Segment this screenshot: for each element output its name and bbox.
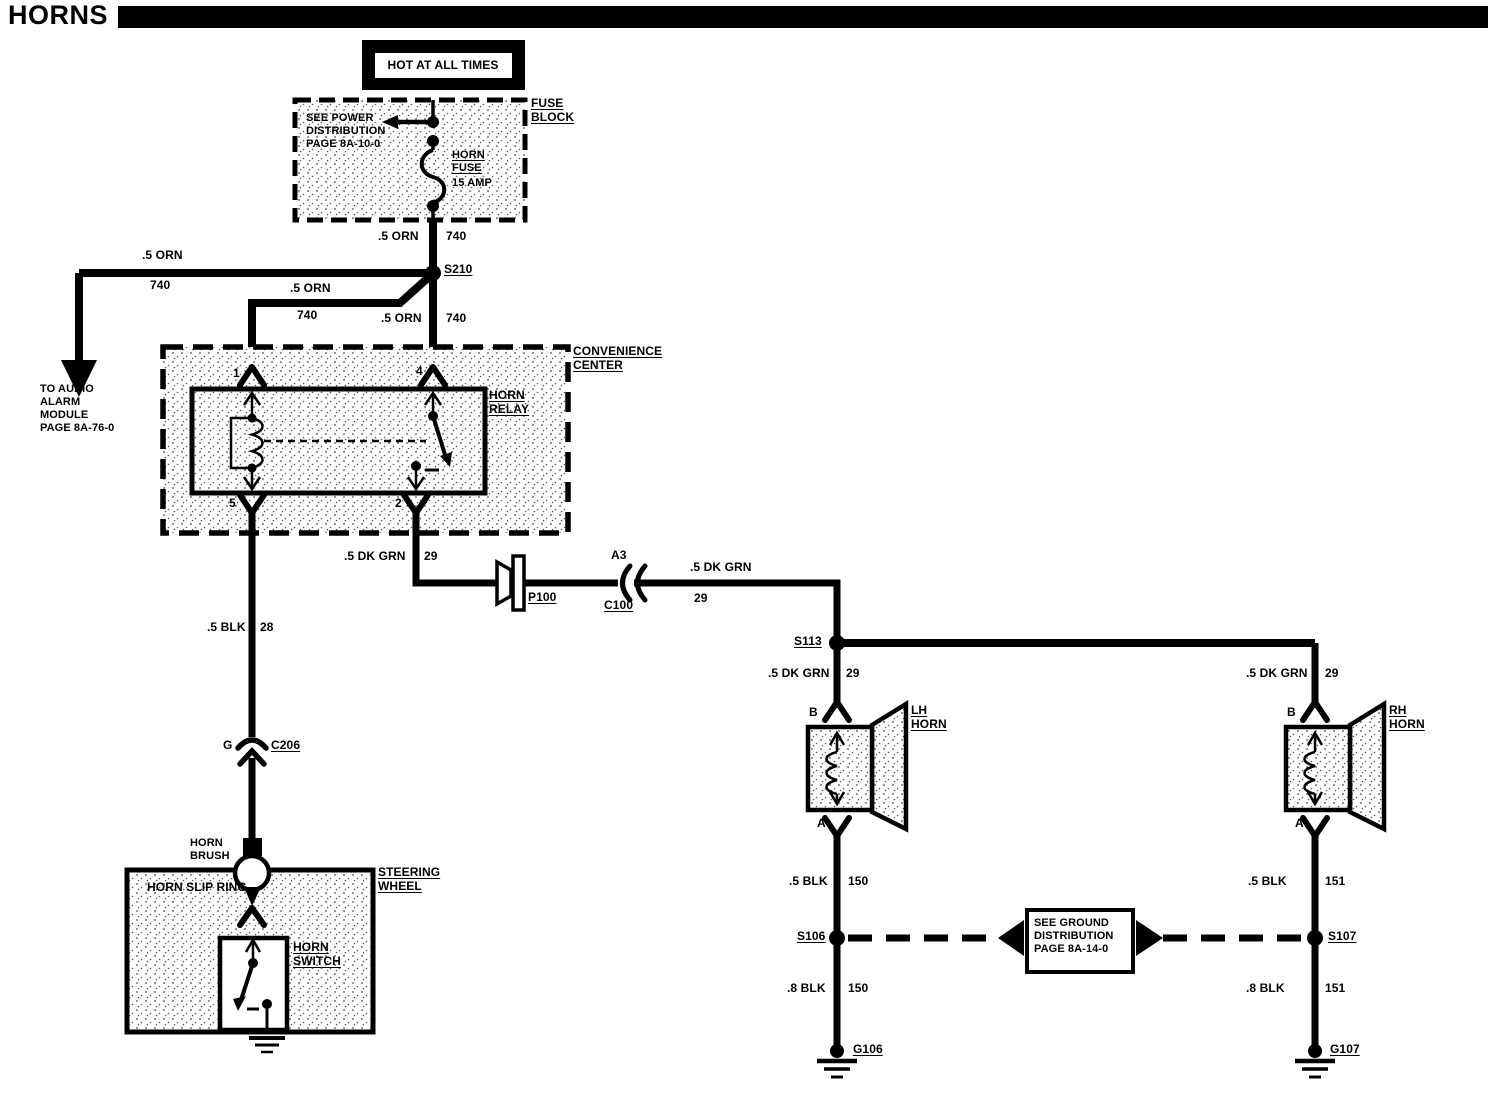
power-distribution-note: SEE POWER DISTRIBUTION PAGE 8A-10-0 [306, 112, 385, 151]
diagram-artwork [0, 0, 1488, 1104]
connector-p100 [497, 556, 524, 610]
lh-horn-label: LH HORN [911, 703, 947, 731]
rh-horn-terminal-b: B [1287, 705, 1296, 719]
audio-alarm-note: TO AUDIO ALARM MODULE PAGE 8A-76-0 [40, 383, 114, 435]
ground-g107-label: G107 [1330, 1042, 1360, 1056]
lh-horn-terminal-b: B [809, 705, 818, 719]
wire-color-relay4-branch: .5 ORN [381, 311, 422, 325]
rh-horn-label: RH HORN [1389, 703, 1425, 731]
wire-circuit-s113-lh: 29 [846, 666, 860, 680]
splice-s106 [829, 930, 845, 946]
ground-g106-label: G106 [853, 1042, 883, 1056]
page-title: HORNS [8, 2, 108, 29]
splice-s210 [425, 265, 441, 281]
wire-color-relay1-branch: .5 ORN [290, 281, 331, 295]
splice-s113 [829, 635, 845, 651]
wire-circuit-relay5-out: 28 [260, 620, 274, 634]
wiring-diagram-page: HORNS HOT AT ALL TIMES FUSE BLOCK SEE PO… [0, 0, 1488, 1104]
wire-circuit-relay2-out: 29 [424, 549, 438, 563]
splice-s107 [1307, 930, 1323, 946]
ground-distribution-note: SEE GROUND DISTRIBUTION PAGE 8A-14-0 [1034, 917, 1113, 956]
wire-circuit-s107-g107: 151 [1325, 981, 1345, 995]
wire-color-relay2-out: .5 DK GRN [344, 549, 406, 563]
convenience-center-label: CONVENIENCE CENTER [573, 344, 662, 372]
relay-terminal-4: 4 [416, 364, 423, 378]
connector-c100-pin: A3 [611, 548, 627, 562]
wire-circuit-s106-g106: 150 [848, 981, 868, 995]
horn-fuse-label: HORN FUSE [452, 149, 485, 175]
wire-circuit-rh-s107: 151 [1325, 874, 1345, 888]
wire-color-fuse-s210: .5 ORN [378, 229, 419, 243]
connector-p100-label: P100 [528, 590, 556, 604]
wire-color-lh-s106: .5 BLK [789, 874, 828, 888]
wire-circuit-audio-branch: 740 [150, 278, 170, 292]
wire-color-relay5-out: .5 BLK [207, 620, 246, 634]
splice-s106-label: S106 [797, 929, 825, 943]
wire-circuit-fuse-s210: 740 [446, 229, 466, 243]
wire-circuit-s113-rh: 29 [1325, 666, 1339, 680]
ground-horn-switch [249, 1038, 285, 1052]
ground-g107 [1295, 1044, 1335, 1077]
relay-terminal-5: 5 [229, 496, 236, 510]
horn-switch-symbol [220, 938, 287, 1034]
splice-s113-label: S113 [794, 634, 822, 648]
connector-c206-pin: G [223, 738, 232, 752]
wire-color-s106-g106: .8 BLK [787, 981, 826, 995]
lh-horn-terminal-a: A [817, 816, 826, 830]
wire-color-s113-lh: .5 DK GRN [768, 666, 830, 680]
ground-g106 [817, 1044, 857, 1077]
horn-fuse-rating: 15 AMP [452, 177, 492, 190]
wire-color-c100-s113: .5 DK GRN [690, 560, 752, 574]
wire-color-s113-rh: .5 DK GRN [1246, 666, 1308, 680]
connector-c206-label: C206 [271, 738, 300, 752]
horn-switch-label: HORN SWITCH [293, 940, 341, 968]
relay-terminal-2: 2 [395, 496, 402, 510]
wire-s113-runs [837, 643, 1315, 704]
wire-circuit-relay4-branch: 740 [446, 311, 466, 325]
fuse-block-label: FUSE BLOCK [531, 96, 574, 124]
wire-color-s107-g107: .8 BLK [1246, 981, 1285, 995]
connector-c100-label: C100 [604, 598, 633, 612]
power-source-label: HOT AT ALL TIMES [368, 58, 518, 72]
wire-circuit-c100-s113: 29 [694, 591, 708, 605]
relay-terminal-1: 1 [233, 366, 240, 380]
steering-wheel-label: STEERING WHEEL [378, 865, 440, 893]
splice-s210-label: S210 [444, 262, 472, 276]
horn-brush-label: HORN BRUSH [190, 837, 230, 863]
rh-horn-terminal-a: A [1295, 816, 1304, 830]
wire-color-audio-branch: .5 ORN [142, 248, 183, 262]
header-rule [118, 6, 1488, 28]
wire-circuit-lh-s106: 150 [848, 874, 868, 888]
horn-relay-label: HORN RELAY [489, 388, 529, 416]
splice-s107-label: S107 [1328, 929, 1356, 943]
wire-circuit-relay1-branch: 740 [297, 308, 317, 322]
wire-color-rh-s107: .5 BLK [1248, 874, 1287, 888]
horn-slip-ring-label: HORN SLIP RING [147, 880, 247, 894]
